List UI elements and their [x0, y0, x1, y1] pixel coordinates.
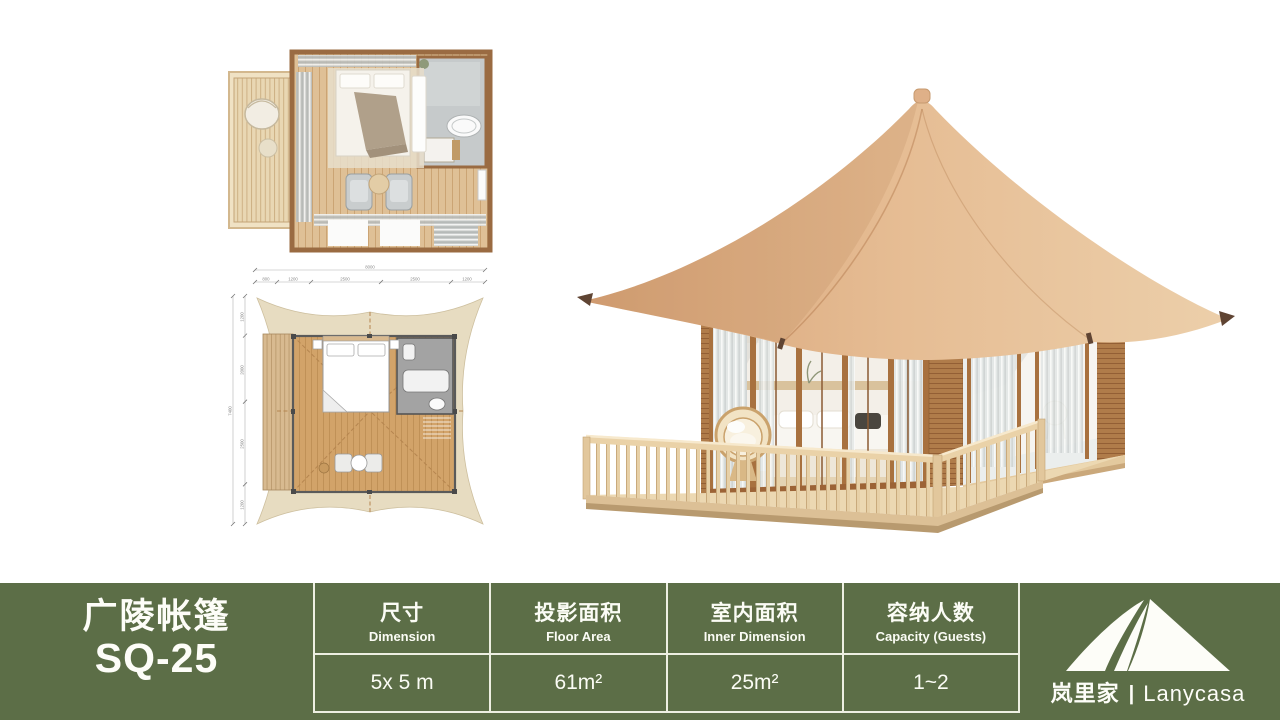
spec-header-en: Floor Area [546, 629, 611, 644]
hanging-chair [245, 99, 279, 129]
svg-text:2500: 2500 [239, 439, 244, 449]
interior-top-view-render [228, 48, 494, 256]
spec-value: 25m² [668, 655, 842, 711]
spec-header-zh: 尺寸 [380, 597, 424, 627]
room-top-view [292, 52, 490, 250]
product-name-zh: 广陵帐篷 [0, 597, 313, 636]
spec-header-zh: 室内面积 [711, 597, 799, 627]
spec-col-floor-area: 投影面积 Floor Area 61m² [489, 583, 665, 711]
brand-name-zh: 岚里家 [1051, 676, 1120, 708]
product-slide: 8000 800 1200 2500 2500 1200 7400 1200 2… [0, 0, 1280, 720]
brand-name-en: Lanycasa [1143, 681, 1245, 707]
floor-plan-drawing: 8000 800 1200 2500 2500 1200 7400 1200 2… [227, 262, 513, 548]
dim-total-width: 8000 [365, 265, 375, 270]
spec-table: 尺寸 Dimension 5x 5 m 投影面积 Floor Area 61m²… [313, 583, 1020, 713]
svg-text:1200: 1200 [288, 277, 298, 282]
bed-top-view [328, 68, 426, 168]
brand-separator: | [1129, 683, 1135, 706]
svg-text:2500: 2500 [340, 277, 350, 282]
spec-col-capacity: 容纳人数 Capacity (Guests) 1~2 [842, 583, 1018, 711]
deck-plan [263, 334, 293, 490]
spec-value: 1~2 [844, 655, 1018, 711]
lanycasa-tent-icon [1066, 599, 1230, 671]
spec-col-dimension: 尺寸 Dimension 5x 5 m [313, 583, 489, 711]
tent-roof [577, 89, 1235, 360]
product-model: SQ-25 [0, 636, 313, 682]
brand-logo: 岚里家 | Lanycasa [1040, 599, 1256, 713]
roof-cap [914, 89, 930, 103]
product-title: 广陵帐篷 SQ-25 [0, 597, 313, 682]
spec-header-en: Capacity (Guests) [876, 629, 987, 644]
spec-value: 5x 5 m [315, 655, 489, 711]
svg-text:1200: 1200 [239, 500, 244, 510]
dim-total-depth: 7400 [228, 406, 233, 416]
svg-text:2000: 2000 [239, 365, 244, 375]
tent-exterior-render [573, 83, 1240, 560]
spec-header-zh: 投影面积 [534, 597, 622, 627]
bed-plan [313, 336, 399, 412]
deck-top-view [229, 72, 295, 228]
bathroom-top-view [418, 57, 486, 167]
svg-text:800: 800 [262, 277, 270, 282]
svg-text:2500: 2500 [410, 277, 420, 282]
svg-text:1200: 1200 [462, 277, 472, 282]
spec-header-en: Inner Dimension [704, 629, 806, 644]
brand-text: 岚里家 | Lanycasa [1051, 676, 1246, 708]
svg-text:1200: 1200 [239, 312, 244, 322]
spec-col-inner-dimension: 室内面积 Inner Dimension 25m² [666, 583, 842, 711]
spec-header-zh: 容纳人数 [887, 597, 975, 627]
spec-header-en: Dimension [369, 629, 435, 644]
room-plan [277, 312, 463, 512]
spec-value: 61m² [491, 655, 665, 711]
